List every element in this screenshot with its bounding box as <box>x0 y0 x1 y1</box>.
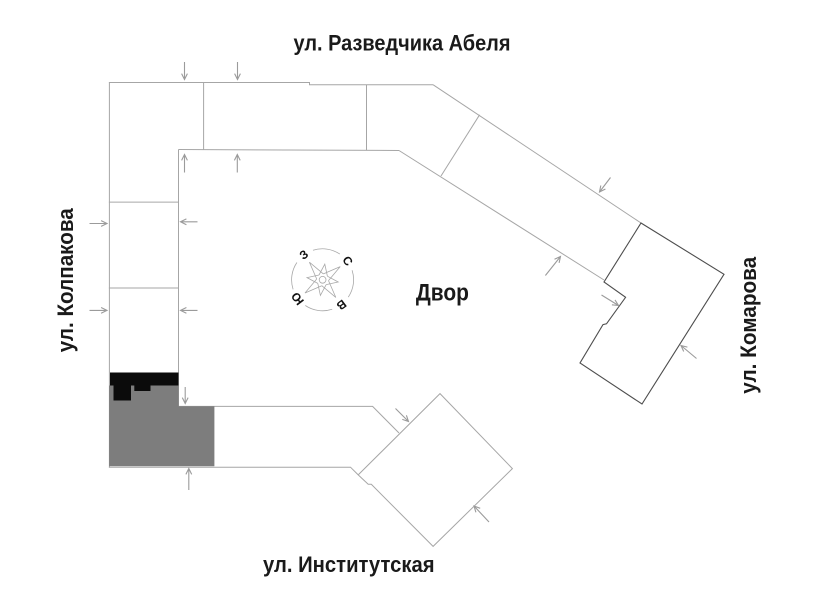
svg-text:ул. Разведчика Абеля: ул. Разведчика Абеля <box>294 30 511 55</box>
svg-text:ул. Комарова: ул. Комарова <box>736 256 761 394</box>
svg-text:ул. Институтская: ул. Институтская <box>263 552 435 577</box>
svg-text:ул. Колпакова: ул. Колпакова <box>53 208 78 353</box>
svg-text:Двор: Двор <box>416 280 469 307</box>
